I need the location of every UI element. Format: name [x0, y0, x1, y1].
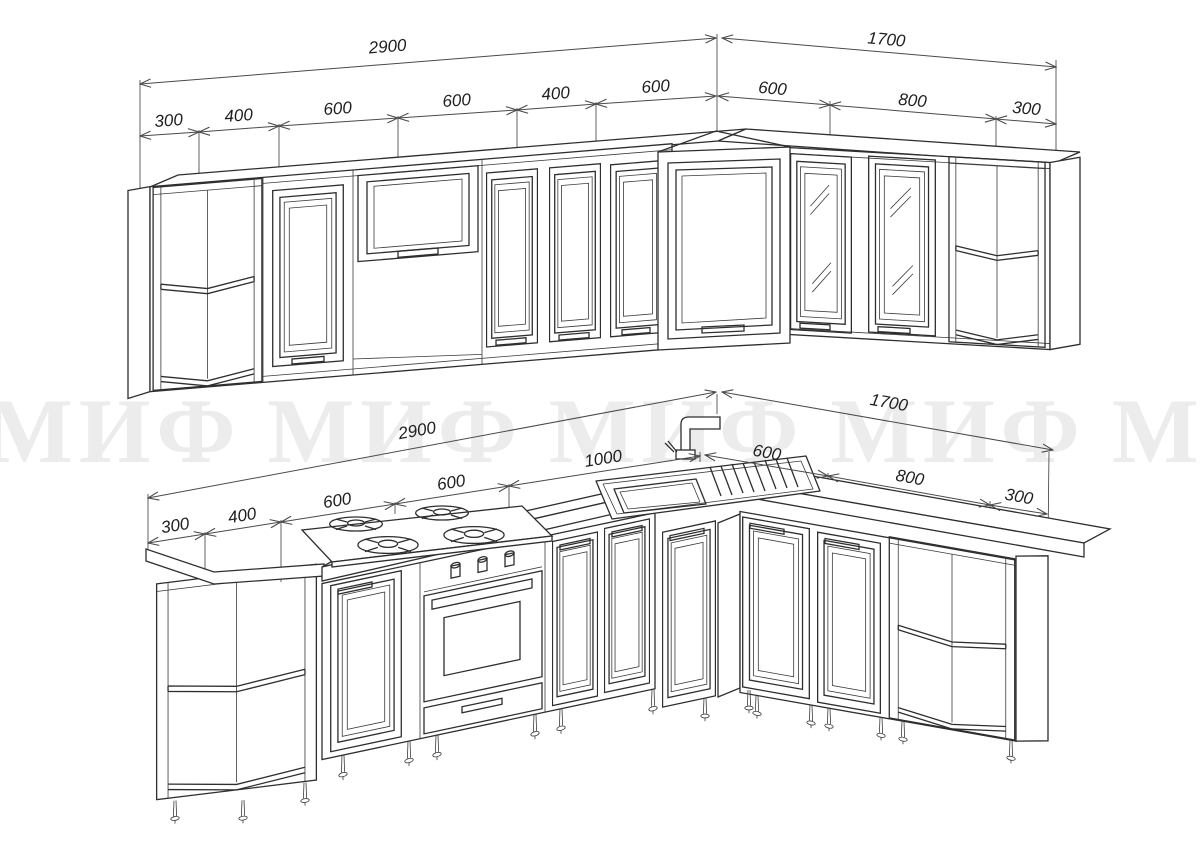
kitchen-technical-drawing: 2900 1700 300 400 600 600 400 600 600 80… [0, 0, 1200, 848]
base-corner-open-shelf-left [157, 564, 317, 834]
dim-label: 2900 [396, 418, 438, 444]
dim-label: 300 [1012, 98, 1042, 119]
faucet [665, 417, 720, 459]
dim-label: 300 [154, 110, 184, 131]
dim-label: 600 [758, 78, 788, 99]
end-shelf-top-slab [146, 549, 324, 584]
dim-label: 600 [751, 441, 783, 465]
dim-label: 800 [898, 90, 928, 111]
dim-label: 800 [894, 466, 926, 490]
right-side-panel [1050, 156, 1080, 352]
dim-label: 400 [224, 105, 254, 126]
dim-label: 600 [436, 471, 468, 494]
wall-run-right [785, 140, 1080, 351]
kitchen-drawing-page: МИФМИФМИФМИФМИФМИФ [0, 0, 1200, 848]
dim-label: 2900 [367, 36, 408, 58]
dimensions-top-view: 2900 1700 300 400 600 600 400 600 600 80… [140, 28, 1056, 136]
dim-line-2900-top [140, 38, 716, 84]
dim-label: 600 [323, 98, 353, 119]
dim-label: 600 [641, 76, 671, 97]
dim-label: 1000 [583, 446, 624, 471]
dim-label: 400 [227, 504, 259, 527]
wall-corner-cabinet [658, 131, 790, 350]
base-corner-post [718, 514, 740, 697]
base-cabinets-drawing [146, 417, 1110, 834]
dim-label: 300 [1003, 485, 1035, 509]
dim-label: 300 [160, 514, 192, 537]
dim-label: 1700 [869, 390, 910, 415]
dim-label: 600 [442, 90, 472, 111]
right-side-panel [1016, 550, 1048, 747]
wall-run-left [128, 144, 672, 399]
sink-cabinet-door [663, 521, 716, 707]
faucet-lever [665, 441, 677, 452]
wall-cabinets-drawing [128, 129, 1080, 398]
dim-label: 1700 [867, 28, 907, 50]
dim-label: 400 [541, 83, 571, 104]
dim-label: 600 [322, 489, 354, 512]
left-side-panel [128, 187, 150, 399]
